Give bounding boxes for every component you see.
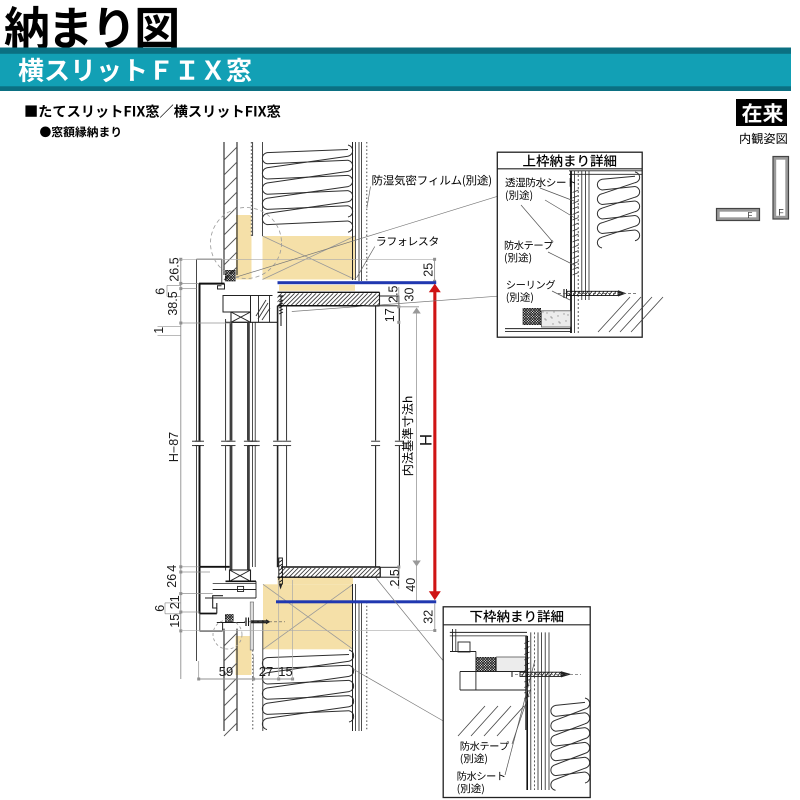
svg-text:1: 1 [152, 327, 166, 334]
svg-text:H−87: H−87 [167, 432, 181, 462]
svg-text:4: 4 [165, 565, 179, 572]
svg-text:25: 25 [422, 263, 436, 277]
svg-text:15: 15 [278, 664, 292, 679]
svg-text:38.5: 38.5 [166, 291, 180, 315]
svg-text:32: 32 [422, 610, 436, 624]
svg-text:26.5: 26.5 [168, 257, 182, 281]
svg-text:15: 15 [168, 614, 182, 628]
svg-text:26: 26 [165, 574, 179, 588]
svg-text:21: 21 [168, 595, 182, 609]
svg-text:H: H [416, 434, 435, 446]
svg-text:17: 17 [383, 308, 397, 322]
svg-text:30: 30 [402, 288, 416, 302]
svg-text:F: F [748, 211, 753, 220]
svg-text:2.5: 2.5 [388, 569, 402, 586]
svg-text:40: 40 [404, 578, 418, 592]
svg-text:59: 59 [219, 664, 233, 679]
svg-text:27: 27 [259, 664, 273, 679]
svg-text:F: F [778, 208, 784, 218]
svg-text:6: 6 [153, 605, 167, 612]
svg-text:2.5: 2.5 [387, 285, 401, 302]
